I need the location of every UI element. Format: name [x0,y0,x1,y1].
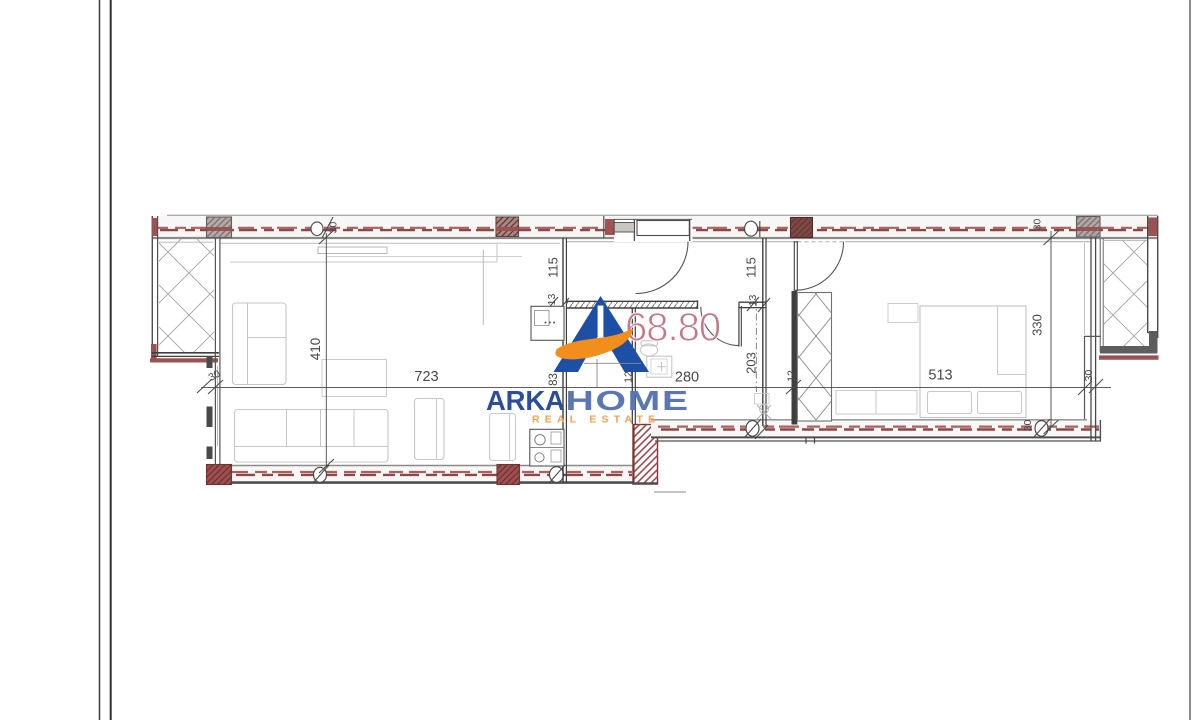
svg-text:HOME: HOME [566,385,690,416]
svg-text:330: 330 [1030,314,1045,336]
svg-text:ARKA: ARKA [486,385,565,416]
svg-text:30: 30 [1022,420,1034,432]
svg-text:30: 30 [1083,370,1095,382]
svg-text:115: 115 [744,257,759,278]
svg-text:13: 13 [747,295,759,307]
svg-text:13: 13 [546,294,558,306]
svg-text:513: 513 [928,368,952,384]
svg-text:83: 83 [548,373,560,386]
svg-text:280: 280 [675,370,699,386]
svg-text:12: 12 [786,370,798,382]
svg-text:115: 115 [546,257,561,278]
svg-text:30: 30 [328,222,340,234]
svg-text:410: 410 [308,338,323,361]
svg-text:203: 203 [744,352,759,374]
svg-text:12: 12 [623,371,635,383]
svg-text:68.80: 68.80 [625,306,720,350]
svg-text:30: 30 [1032,219,1044,231]
svg-text:723: 723 [414,369,438,385]
svg-text:REAL ESTATE: REAL ESTATE [532,414,660,426]
